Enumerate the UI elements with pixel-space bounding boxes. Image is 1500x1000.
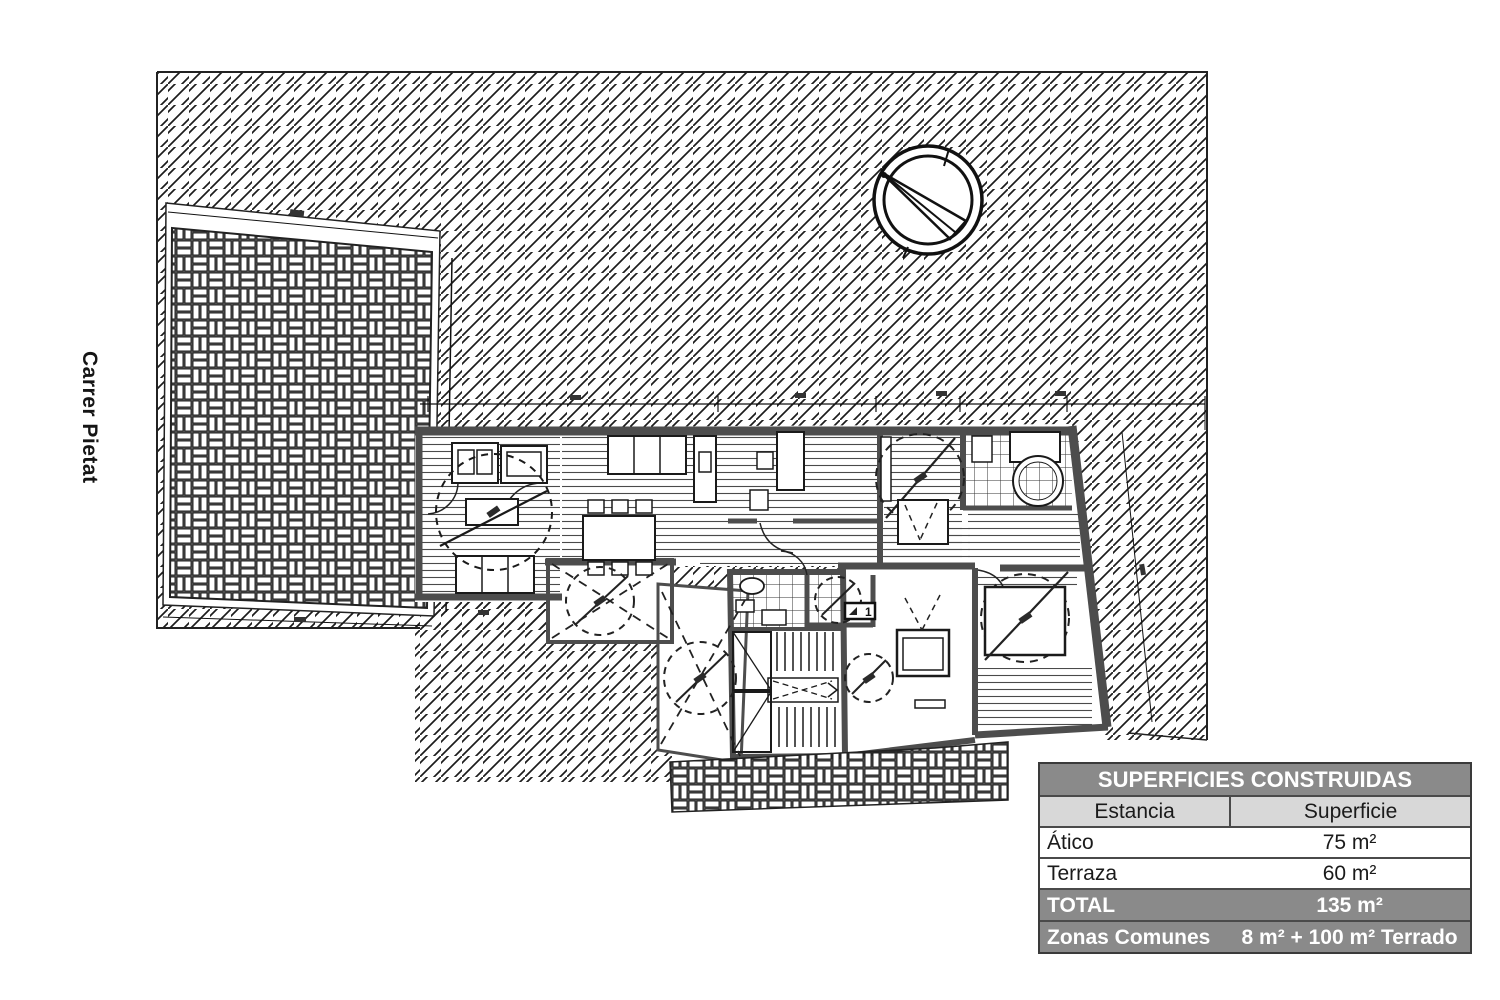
areas-table-subheader: Estancia Superficie: [1040, 795, 1470, 826]
table-row-total: TOTAL 135 m²: [1040, 888, 1470, 920]
sofa: [608, 436, 686, 474]
row-value: 60 m²: [1229, 859, 1470, 888]
dining-table: [583, 500, 655, 575]
row-label: Ático: [1040, 828, 1229, 857]
row-label: Zonas Comunes: [1040, 923, 1229, 952]
terrace: [163, 203, 452, 626]
desk: [777, 432, 804, 490]
row-value: 135 m²: [1229, 891, 1470, 920]
table-row-zonas-comunes: Zonas Comunes 8 m² + 100 m² Terrado: [1040, 920, 1470, 952]
row-label: TOTAL: [1040, 891, 1229, 920]
row-value: 75 m²: [1229, 828, 1470, 857]
column-header-superficie: Superficie: [1229, 797, 1470, 826]
table-row-atico: Ático 75 m²: [1040, 826, 1470, 857]
row-value: 8 m² + 100 m² Terrado: [1229, 923, 1470, 952]
table-row-terraza: Terraza 60 m²: [1040, 857, 1470, 888]
row-label: Terraza: [1040, 859, 1229, 888]
door-number-label: 1: [865, 605, 872, 619]
areas-table: SUPERFICIES CONSTRUIDAS Estancia Superfi…: [1038, 762, 1472, 954]
floor-plan-page: Carrer Pietat: [0, 0, 1500, 1000]
areas-table-title: SUPERFICIES CONSTRUIDAS: [1040, 764, 1470, 795]
column-header-estancia: Estancia: [1040, 797, 1229, 826]
